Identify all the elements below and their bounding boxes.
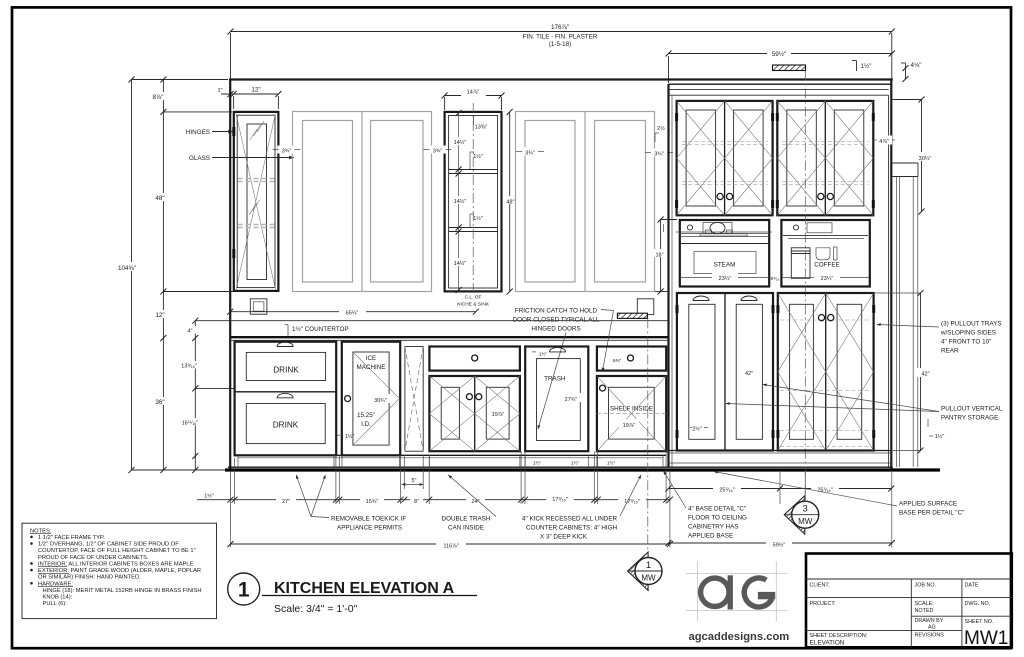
svg-text:27¾": 27¾": [565, 397, 578, 403]
svg-text:KNOB (14):: KNOB (14):: [43, 595, 73, 601]
svg-text:116⅞": 116⅞": [443, 543, 458, 549]
svg-text:23¼": 23¼": [821, 276, 834, 282]
svg-text:24": 24": [471, 499, 479, 505]
svg-text:DRINK: DRINK: [273, 421, 299, 430]
svg-text:3¾": 3¾": [282, 149, 292, 155]
svg-text:TRASH: TRASH: [544, 376, 566, 383]
svg-text:15.25": 15.25": [357, 412, 375, 419]
svg-text:23¼": 23¼": [719, 276, 732, 282]
svg-text:STEAM: STEAM: [714, 262, 736, 269]
svg-text:59½": 59½": [772, 50, 787, 58]
svg-text:JOB NO.: JOB NO.: [915, 583, 937, 589]
svg-text:(1-5-18): (1-5-18): [549, 41, 571, 48]
svg-text:42": 42": [745, 371, 753, 377]
svg-text:4" BASE DETAIL "C": 4" BASE DETAIL "C": [688, 506, 746, 513]
svg-text:APPLIED BASE: APPLIED BASE: [688, 533, 733, 540]
svg-text:4⅛": 4⅛": [911, 62, 922, 69]
svg-text:65¼": 65¼": [346, 311, 359, 317]
svg-text:X 3" DEEP KICK: X 3" DEEP KICK: [540, 534, 588, 541]
svg-text:1½": 1½": [345, 433, 355, 440]
svg-text:CABINETRY HAS: CABINETRY HAS: [688, 524, 739, 531]
svg-text:8": 8": [414, 499, 419, 505]
svg-text:13⁹⁄₁₆": 13⁹⁄₁₆": [181, 363, 196, 370]
svg-text:CAN INSIDE: CAN INSIDE: [448, 525, 484, 532]
svg-text:3¾": 3¾": [654, 152, 664, 158]
svg-text:18": 18": [655, 253, 663, 259]
svg-text:14½": 14½": [454, 260, 467, 267]
svg-text:HINGE (18): MERIT METAL 152RB: HINGE (18): MERIT METAL 152RB HINGE IN B…: [43, 588, 202, 594]
svg-text:DOOR CLOSED TYPICAL ALL: DOOR CLOSED TYPICAL ALL: [513, 317, 600, 324]
svg-text:MACHINE: MACHINE: [356, 364, 385, 371]
svg-text:3¾": 3¾": [525, 151, 535, 157]
svg-text:DRINK: DRINK: [273, 366, 299, 375]
svg-text:HINGED DOORS: HINGED DOORS: [531, 326, 580, 333]
svg-text:2½": 2½": [692, 426, 702, 433]
svg-text:FIN. TILE - FIN. PLASTER: FIN. TILE - FIN. PLASTER: [523, 34, 598, 41]
svg-text:14½": 14½": [454, 198, 467, 205]
svg-text:4" KICK RECESSED ALL UNDER: 4" KICK RECESSED ALL UNDER: [522, 516, 618, 523]
svg-text:HINGES: HINGES: [186, 129, 210, 136]
svg-text:1½": 1½": [607, 460, 616, 467]
svg-text:1½": 1½": [473, 215, 483, 222]
svg-text:PROJECT:: PROJECT:: [810, 601, 836, 607]
svg-text:ICE: ICE: [366, 355, 377, 362]
svg-text:agcaddesigns.com: agcaddesigns.com: [689, 631, 790, 643]
svg-text:(3) PULLOUT TRAYS: (3) PULLOUT TRAYS: [941, 321, 1002, 328]
svg-text:Scale: 3/4" = 1'-0": Scale: 3/4" = 1'-0": [274, 603, 358, 615]
svg-text:HARDWARE:: HARDWARE:: [38, 581, 73, 587]
svg-text:176⅞": 176⅞": [551, 24, 569, 31]
svg-text:MW: MW: [641, 574, 656, 583]
svg-text:6⅜": 6⅜": [613, 358, 622, 364]
svg-text:3: 3: [803, 504, 808, 515]
svg-text:12": 12": [155, 312, 164, 319]
svg-text:PANTRY STORAGE: PANTRY STORAGE: [941, 415, 998, 422]
svg-text:3¾": 3¾": [433, 149, 443, 155]
svg-text:NOTED: NOTED: [915, 608, 934, 614]
svg-text:1: 1: [646, 560, 651, 571]
svg-text:MW1: MW1: [964, 628, 1008, 649]
svg-text:4" FRONT TO 10": 4" FRONT TO 10": [941, 339, 991, 346]
svg-text:14½": 14½": [454, 139, 467, 146]
svg-text:DOUBLE TRASH: DOUBLE TRASH: [442, 516, 491, 523]
svg-text:OR SIMILAR) FINISH: HAND PAINT: OR SIMILAR) FINISH: HAND PAINTED.: [38, 575, 141, 581]
svg-text:PULLOUT VERTICAL: PULLOUT VERTICAL: [941, 406, 1003, 413]
svg-text:DATE: DATE: [965, 583, 979, 589]
svg-text:MW: MW: [798, 517, 813, 526]
svg-text:C.L. OF: C.L. OF: [465, 295, 482, 301]
svg-text:30¼": 30¼": [919, 156, 932, 162]
svg-text:SHEET DESCRIPTION:: SHEET DESCRIPTION:: [810, 633, 868, 639]
svg-text:27": 27": [282, 499, 290, 505]
svg-text:REVISIONS: REVISIONS: [915, 633, 945, 639]
svg-text:APPLIED SURFACE: APPLIED SURFACE: [899, 501, 957, 508]
svg-text:ELEVATION: ELEVATION: [810, 640, 845, 647]
svg-text:5": 5": [411, 478, 416, 484]
svg-text:48": 48": [155, 195, 164, 202]
svg-text:REMOVABLE TOEKICK IF: REMOVABLE TOEKICK IF: [331, 516, 406, 523]
svg-text:19⅞": 19⅞": [492, 412, 505, 418]
svg-text:17⁹⁄₁₆": 17⁹⁄₁₆": [552, 496, 567, 503]
svg-text:15¾": 15¾": [366, 499, 379, 505]
svg-text:1½": 1½": [204, 493, 214, 500]
svg-text:1": 1": [217, 88, 222, 94]
svg-text:36": 36": [155, 399, 164, 406]
svg-text:EXTERIOR: PAINT GRADE WOOD (AL: EXTERIOR: PAINT GRADE WOOD (ALDER, MAPLE…: [38, 568, 201, 574]
svg-text:1½": 1½": [571, 460, 580, 467]
svg-text:104⅝": 104⅝": [118, 265, 136, 272]
svg-text:19⅞": 19⅞": [623, 423, 636, 429]
svg-text:COFFEE: COFFEE: [814, 262, 840, 269]
svg-text:1: 1: [238, 579, 250, 602]
svg-text:SCALE:: SCALE:: [915, 601, 934, 607]
svg-text:1/2" OVERHANG, 1/2" OF CABINET: 1/2" OVERHANG, 1/2" OF CABINET SIDE PROU…: [38, 542, 179, 548]
svg-text:FRICTION CATCH TO HOLD: FRICTION CATCH TO HOLD: [515, 308, 598, 315]
svg-text:1½": 1½": [539, 351, 548, 358]
svg-text:SHEET NO.: SHEET NO.: [965, 619, 994, 625]
svg-text:6⁵⁄₁₆: 6⁵⁄₁₆: [770, 276, 779, 282]
svg-text:BASE PER DETAIL "C": BASE PER DETAIL "C": [899, 510, 964, 517]
svg-text:NOTES:: NOTES:: [30, 528, 52, 534]
svg-text:30¾": 30¾": [374, 398, 387, 404]
svg-text:FLOOR TO CEILING: FLOOR TO CEILING: [688, 515, 747, 522]
svg-text:GLASS: GLASS: [189, 155, 210, 162]
svg-text:PULL (6):: PULL (6):: [43, 601, 68, 607]
svg-text:PROUD OF FACE OF UNDER CABINET: PROUD OF FACE OF UNDER CABINETS.: [38, 555, 149, 561]
svg-text:13⅜": 13⅜": [475, 125, 488, 131]
svg-text:4⅞": 4⅞": [879, 139, 889, 145]
svg-text:CLIENT:: CLIENT:: [810, 583, 830, 589]
svg-text:1 1/2" FACE FRAME TYP.: 1 1/2" FACE FRAME TYP.: [38, 535, 105, 541]
svg-text:42": 42": [921, 372, 929, 378]
svg-text:16¹¹⁄₁₆": 16¹¹⁄₁₆": [182, 421, 199, 427]
svg-text:INTERIOR: ALL INTERIOR CABINET: INTERIOR: ALL INTERIOR CABINETS BOXES AR…: [38, 561, 194, 567]
svg-text:1½" COUNTERTOP: 1½" COUNTERTOP: [292, 325, 349, 333]
svg-text:COUNTERTOP, FACE OF FULL HEIGH: COUNTERTOP, FACE OF FULL HEIGHT CABINET …: [38, 548, 196, 554]
svg-text:I.D.: I.D.: [361, 421, 371, 428]
svg-text:DWG. NO.: DWG. NO.: [965, 601, 991, 607]
svg-text:COUNTER CABINETS: 4" HIGH: COUNTER CABINETS: 4" HIGH: [526, 525, 618, 532]
svg-text:1½": 1½": [935, 433, 945, 440]
svg-text:APPLIANCE PERMITS: APPLIANCE PERMITS: [337, 525, 402, 532]
svg-text:SHELF INSIDE: SHELF INSIDE: [610, 406, 653, 413]
svg-text:8⅞": 8⅞": [153, 94, 164, 101]
svg-text:1½": 1½": [473, 153, 483, 160]
svg-text:REAR: REAR: [941, 348, 959, 355]
svg-text:w/SLOPING SIDES: w/SLOPING SIDES: [940, 330, 996, 337]
svg-text:59½": 59½": [773, 541, 786, 548]
svg-text:KITCHEN ELEVATION A: KITCHEN ELEVATION A: [274, 580, 455, 597]
svg-text:25⁵⁄₁₆": 25⁵⁄₁₆": [719, 486, 734, 493]
svg-text:AG: AG: [928, 624, 936, 630]
svg-text:2½: 2½: [657, 125, 665, 132]
svg-text:14⅞": 14⅞": [467, 90, 480, 96]
svg-text:12": 12": [251, 87, 260, 94]
svg-text:1½": 1½": [861, 62, 872, 70]
svg-text:48": 48": [506, 200, 514, 206]
svg-text:1½": 1½": [533, 460, 542, 467]
svg-text:4": 4": [187, 329, 192, 335]
svg-text:NICHE & SINK: NICHE & SINK: [457, 302, 490, 308]
svg-text:DRAWN BY: DRAWN BY: [915, 618, 944, 624]
